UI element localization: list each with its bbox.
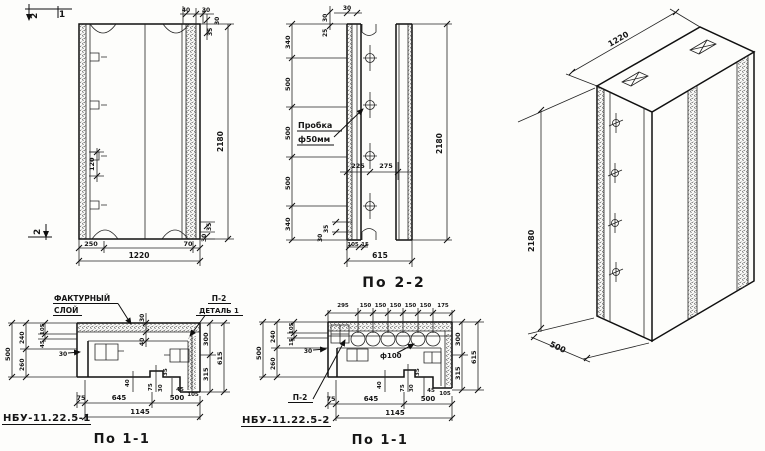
dim-b-i75: 75: [400, 384, 406, 392]
sec-a-outline: [77, 323, 200, 392]
iso-dim-500-label: 500: [548, 340, 567, 355]
detail-ref-line2: ДЕТАЛЬ 1: [199, 307, 239, 315]
hole-label: ф100: [380, 352, 402, 360]
dim-chain-left-a: 500 240 260 105 45 30: [4, 320, 80, 380]
dim-a-r315: 315: [202, 367, 210, 381]
dim-b-i35: 35: [415, 368, 421, 376]
drawing-canvas: 2 1 2 40 30 35 30 120 2180: [0, 0, 765, 451]
dim-a-b75: 75: [76, 394, 86, 402]
dim-bottom-s2: 35 30 105 15 615: [317, 219, 415, 267]
dim-b-b500: 500: [421, 395, 436, 403]
dim-t30: 30: [343, 5, 351, 12]
dim-l25: 25: [322, 29, 329, 37]
dim-a-i75: 75: [148, 383, 154, 391]
dim-b-l240: 240: [270, 330, 277, 343]
dim-b105: 105: [347, 242, 359, 248]
dim-a-i40: 40: [125, 379, 131, 387]
dim-35b: 35: [206, 223, 213, 231]
dim-2180-label: 2180: [216, 131, 225, 152]
dim-b-i45: 45: [427, 388, 435, 394]
dim-chain-left-b: 500 240 260 105 15 30: [255, 319, 328, 380]
facing-layer-band-right: [187, 25, 196, 239]
dim-120-label: 120: [88, 157, 96, 171]
rib-lines: [86, 24, 196, 239]
plug-holes: [363, 45, 377, 219]
dim-500c: 500: [284, 176, 292, 190]
sec-b-rib-hatch: [445, 334, 451, 386]
detail-ref-line1: П-2: [212, 294, 227, 303]
dim-b-175: 175: [437, 303, 449, 309]
iso-rib-hatch-b: [737, 56, 748, 292]
detail-ref-b-label: П-2: [293, 393, 308, 402]
dim-b-i30: 30: [409, 384, 415, 392]
section-2-2-title: По 2-2: [362, 275, 426, 291]
section-1-1-a-title: По 1-1: [94, 432, 151, 447]
dim-30: 30: [202, 7, 210, 14]
section-mark-1-label: 1: [59, 10, 65, 20]
dim-a-i45: 45: [176, 387, 184, 393]
dim-bottom-b: 75 645 500 1145: [325, 380, 455, 421]
dim-b-i40: 40: [377, 381, 383, 389]
section-mark-2-label: 2: [30, 13, 40, 19]
dim-b15: 15: [361, 242, 369, 248]
dim-2180-s2-label: 2180: [435, 133, 444, 154]
iso-facing-edge: [597, 86, 604, 320]
dim-b-l30: 30: [304, 348, 312, 355]
dim-bottom-a: 75 645 500 1145: [74, 380, 203, 420]
dim-340t: 340: [284, 35, 292, 49]
dim-top-s2: 30 30 25: [322, 5, 362, 37]
dim-2180-s2: 2180: [412, 21, 452, 243]
dim-225: 225: [351, 162, 365, 170]
dim-chain-right-a: 300 315 615: [200, 320, 230, 395]
dim-1220: 1220: [129, 251, 150, 260]
dim-a-i35: 35: [163, 368, 169, 376]
section-mark-top: 2 1: [25, 4, 72, 21]
dim-a-l45: 45: [40, 340, 46, 348]
iso-dim-1220: 1220: [566, 9, 700, 86]
view-elevation: 2 1 2 40 30 35 30 120 2180: [25, 4, 234, 266]
edge-hooks: [90, 53, 107, 209]
plug-callout: Пробка ф50мм: [297, 109, 363, 145]
dim-40: 40: [182, 7, 190, 14]
hole-callout: ф100: [380, 344, 414, 360]
view-isometric: 1220 2180 500: [518, 9, 754, 362]
dim-b-r615: 615: [470, 350, 478, 364]
dim-a-l105: 105: [40, 323, 46, 335]
facing-hatch-a: [348, 25, 353, 240]
iso-dim-2180: 2180: [518, 88, 595, 334]
iso-dim-1220-label: 1220: [607, 30, 631, 49]
dim-a-i30: 30: [158, 384, 164, 392]
dim-b30: 30: [317, 234, 324, 242]
dim-b-295: 295: [337, 303, 349, 309]
sec-b-holes: [351, 332, 440, 346]
dim-a-l260: 260: [19, 358, 26, 371]
part-code-a-label: НБУ-11.22.5-1: [3, 413, 91, 424]
part-code-b-label: НБУ-11.22.5-2: [242, 415, 330, 426]
dim-a-l30: 30: [59, 351, 67, 358]
dim-a-b500: 500: [170, 394, 185, 402]
dim-b-i105: 105: [439, 391, 451, 397]
dim-b35: 35: [323, 225, 330, 233]
dim-l30: 30: [322, 14, 329, 22]
dim-b-r300: 300: [454, 332, 462, 346]
dim-a-b1145: 1145: [130, 408, 150, 416]
dim-a-r615: 615: [216, 351, 224, 365]
panel-box: [597, 27, 754, 341]
facing-layer-band-left: [80, 25, 87, 239]
sec-a-facing-hatch: [78, 324, 200, 332]
dim-a-l500: 500: [4, 347, 12, 361]
dim-b615: 615: [372, 251, 388, 260]
dim-interior-b: 40 75 35 30 45 105: [377, 364, 451, 397]
dim-chain-right-b: 300 315 615: [452, 319, 484, 393]
lifting-loop-arcs: [90, 24, 189, 239]
facing-callout: ФАКТУРНЫЙ СЛОЙ: [53, 294, 131, 324]
dim-b-150-4: 150: [405, 303, 417, 309]
section-mark-2b-label: 2: [33, 229, 43, 235]
dim-a-b645: 645: [112, 394, 127, 402]
dim-a-t30: 30: [139, 314, 146, 322]
dim-35: 35: [207, 28, 214, 36]
dim-250: 250: [84, 240, 98, 248]
dim-30c: 30: [201, 234, 208, 242]
section-mark-bottom: 2: [28, 224, 52, 240]
dim-b-150-2: 150: [375, 303, 387, 309]
dim-a-r300: 300: [202, 332, 210, 346]
iso-rib-hatch-a: [688, 86, 697, 321]
view-section-1-1-a: ФАКТУРНЫЙ СЛОЙ П-2 ДЕТАЛЬ 1 30 40 500 24…: [2, 294, 243, 447]
dim-500a: 500: [284, 77, 292, 91]
facing-callout-line2: СЛОЙ: [54, 306, 78, 315]
iso-dim-2180-label: 2180: [527, 229, 536, 252]
dim-275: 275: [379, 162, 393, 170]
plug-callout-line1: Пробка: [298, 120, 332, 130]
dim-b-b645: 645: [364, 395, 379, 403]
plug-callout-line2: ф50мм: [298, 135, 330, 144]
iso-left-face-lines: [604, 90, 644, 338]
facing-callout-line1: ФАКТУРНЫЙ: [54, 294, 110, 303]
dim-70: 70: [183, 240, 193, 248]
dim-b-150-5: 150: [420, 303, 432, 309]
dim-b-l260: 260: [270, 357, 277, 370]
dim-b-l105: 105: [289, 322, 295, 334]
dim-340b: 340: [284, 217, 292, 231]
part-code-b: НБУ-11.22.5-2: [241, 415, 331, 427]
dim-b-150-3: 150: [390, 303, 402, 309]
facing-hatch-b: [408, 25, 412, 240]
dim-b-150-1: 150: [360, 303, 372, 309]
dim-b-l15: 15: [289, 338, 295, 346]
dim-b-b75: 75: [326, 395, 336, 403]
dim-b-b1145: 1145: [385, 409, 405, 417]
dim-2180: 2180: [200, 24, 234, 242]
dim-a-t40: 40: [139, 338, 146, 346]
section-1-1-b-title: По 1-1: [352, 433, 409, 448]
dim-a-l240: 240: [19, 331, 26, 344]
view-section-1-1-b: ф100 П-2 295 150 150 150 150 150 175 500…: [241, 303, 484, 448]
dim-b-r315: 315: [454, 366, 462, 380]
dim-chain-left: 340 500 500 500 340: [284, 21, 347, 243]
dim-b-l500: 500: [255, 346, 263, 360]
dim-500b: 500: [284, 126, 292, 140]
sec-a-rib-hatch: [189, 336, 197, 390]
drawing-sheet: 2 1 2 40 30 35 30 120 2180: [0, 0, 765, 451]
part-code-a: НБУ-11.22.5-1: [2, 413, 91, 425]
dim-a-i105: 105: [187, 392, 199, 398]
view-section-2-2: 340 500 500 500 340 225 275 Пробка ф50мм…: [284, 5, 452, 291]
iso-dim-500: 500: [531, 334, 649, 362]
